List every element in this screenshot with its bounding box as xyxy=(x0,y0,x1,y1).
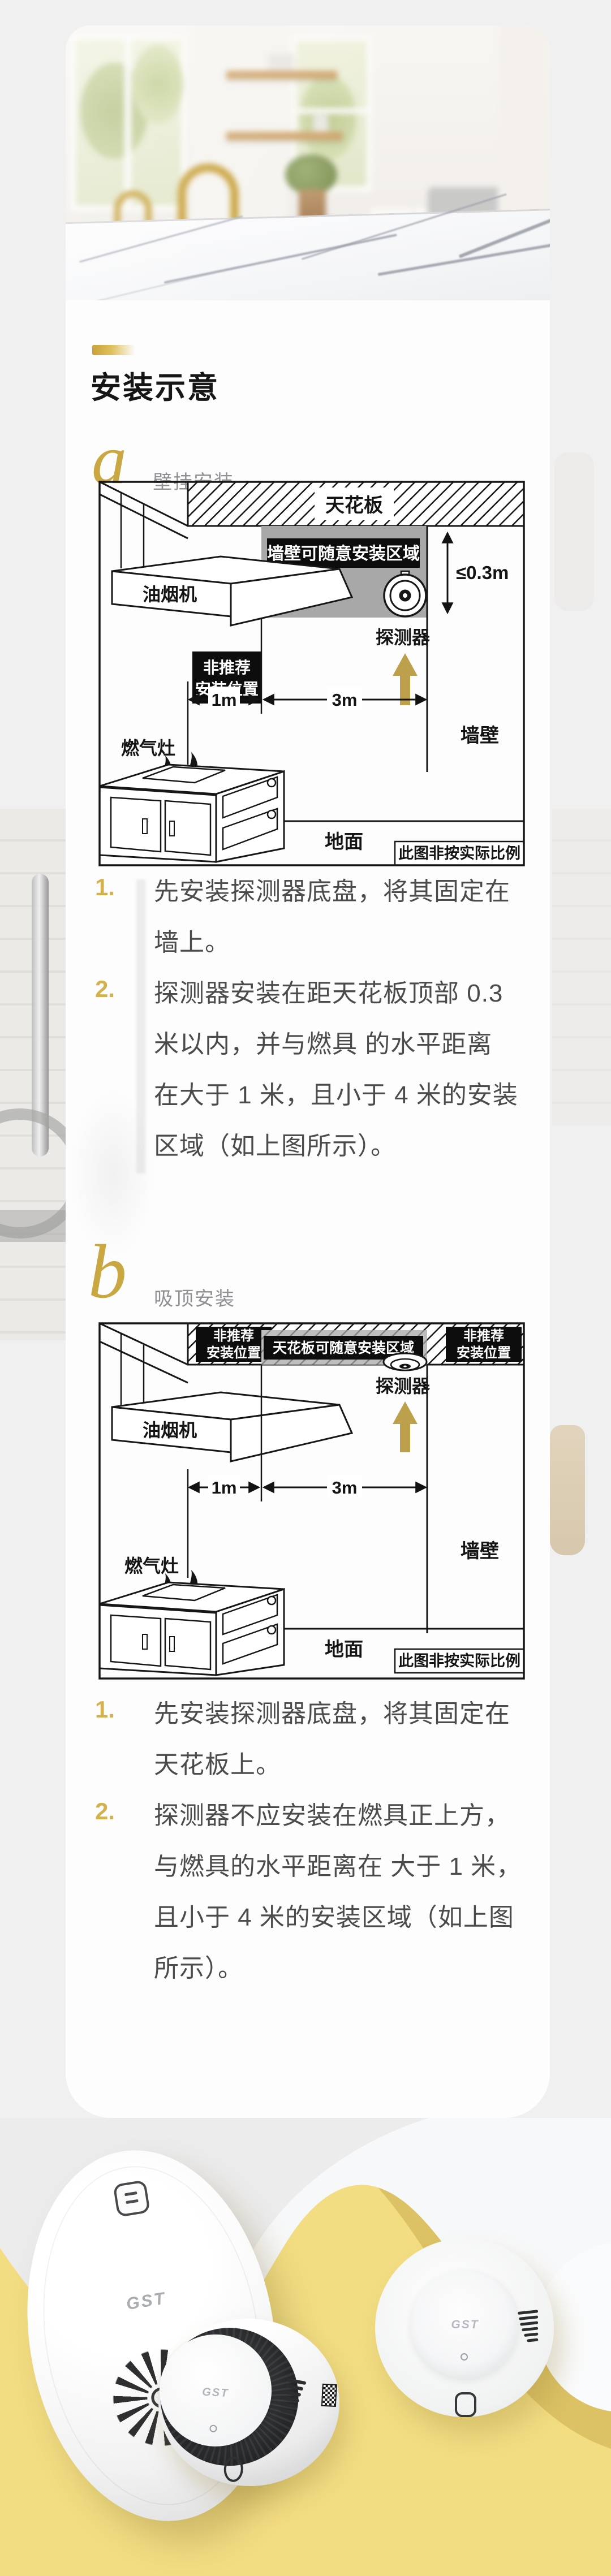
detector-icon xyxy=(384,1353,427,1370)
scale-note: 此图非按实际比例 xyxy=(398,844,520,862)
diagram-wall-mount: 天花板 墙壁可随意安装区域 ≤0.3m 探测器 油烟机 xyxy=(85,478,543,874)
gold-up-arrow xyxy=(393,1401,418,1452)
not-recommended-line2: 安装位置 xyxy=(206,1345,261,1361)
not-recommended-line1: 非推荐 xyxy=(213,1328,254,1344)
not-recommended-line1: 非推荐 xyxy=(203,659,251,676)
scale-note: 此图非按实际比例 xyxy=(398,1652,520,1669)
detector-dome: GST xyxy=(411,2269,519,2378)
grille-slot xyxy=(527,2338,538,2342)
step-text: 与燃具的水平距离在 大于 1 米， xyxy=(154,1849,550,1885)
photo-glare xyxy=(66,25,550,300)
section-b-label: 吸顶安装 xyxy=(154,1283,235,1311)
grille-slot xyxy=(280,2402,298,2409)
svg-text:1m: 1m xyxy=(212,1478,237,1498)
grille-slot xyxy=(522,2327,538,2331)
product-detail-page: 安装示意 a 壁挂安装 天花板 xyxy=(0,0,611,2576)
step-number: 1. xyxy=(95,1696,135,1723)
indicator-badge xyxy=(113,2180,150,2217)
zone-label: 天花板可随意安装区域 xyxy=(273,1340,414,1356)
step-text: 区域（如上图所示）。 xyxy=(154,1128,550,1164)
range-hood: 油烟机 xyxy=(112,1392,352,1461)
detector-label: 探测器 xyxy=(376,1376,431,1396)
bottle-decor xyxy=(550,1425,585,1555)
detector-label: 探测器 xyxy=(376,627,431,648)
product-showcase: GST GST xyxy=(0,2118,611,2576)
hood-label: 油烟机 xyxy=(143,1420,197,1440)
stove-cabinet xyxy=(100,1582,284,1675)
section-letter-b: b xyxy=(88,1233,127,1310)
badge-glyph xyxy=(126,2199,139,2204)
page-title: 安装示意 xyxy=(91,363,220,407)
svg-text:1m: 1m xyxy=(212,690,237,710)
step-number: 2. xyxy=(95,1798,135,1825)
step-text: 先安装探测器底盘，将其固定在 xyxy=(154,874,550,910)
brick-wall-texture-right xyxy=(552,809,611,1125)
not-recommended-line2: 安装位置 xyxy=(457,1345,511,1361)
grille-slot xyxy=(282,2390,302,2397)
detector-middle: GST xyxy=(154,2314,343,2491)
grille-slot xyxy=(280,2396,300,2402)
step-text: 先安装探测器底盘，将其固定在 xyxy=(154,1696,550,1732)
indicator-icon xyxy=(209,2424,217,2432)
grille-slot xyxy=(519,2315,538,2320)
floor-label: 地面 xyxy=(325,1639,363,1660)
badge-glyph xyxy=(124,2191,137,2196)
detector-right: GST xyxy=(375,2238,554,2417)
step-text: 在大于 1 米，且小于 4 米的安装 xyxy=(154,1077,550,1114)
measure-1m: 1m xyxy=(190,1474,258,1498)
step-text: 所示）。 xyxy=(154,1951,550,1987)
kitchen-photo xyxy=(66,25,550,300)
stove-label: 燃气灶 xyxy=(124,1556,179,1576)
stove-cabinet xyxy=(100,765,284,862)
gst-logo: GST xyxy=(411,2318,519,2332)
wall-label: 墙壁 xyxy=(461,1541,499,1562)
grille-slot xyxy=(520,2321,538,2325)
diagram-ceiling-mount: 非推荐 安装位置 天花板可随意安装区域 非推荐 安装位置 探测器 xyxy=(85,1318,543,1685)
step-text: 探测器不应安装在燃具正上方， xyxy=(154,1798,550,1834)
step-text: 且小于 4 米的安装区域（如上图 xyxy=(154,1900,550,1936)
step-number: 2. xyxy=(95,976,135,1003)
distance-03m-label: ≤0.3m xyxy=(456,562,509,583)
qr-code xyxy=(321,2384,337,2407)
step-text: 米以内，并与燃具 的水平距离 xyxy=(154,1026,550,1063)
content-card: 安装示意 a 壁挂安装 天花板 xyxy=(66,25,550,2118)
soft-shadow-decor xyxy=(554,452,594,611)
step-text: 墙上。 xyxy=(154,925,550,961)
gold-up-arrow xyxy=(393,653,418,705)
indicator-icon xyxy=(461,2353,468,2361)
svg-text:3m: 3m xyxy=(332,1478,358,1498)
grille-icon xyxy=(518,2310,541,2345)
test-button-icon xyxy=(455,2392,476,2417)
step-number: 1. xyxy=(95,874,135,901)
measure-3m: 3m xyxy=(265,1474,425,1498)
grille-slot xyxy=(524,2332,538,2337)
hood-label: 油烟机 xyxy=(143,584,197,605)
ceiling-label: 天花板 xyxy=(325,495,383,516)
zone-label: 墙壁可随意安装区域 xyxy=(267,544,420,563)
not-recommended-line1: 非推荐 xyxy=(463,1328,504,1344)
stove-label: 燃气灶 xyxy=(121,738,175,758)
floor-label: 地面 xyxy=(325,831,363,853)
step-text: 天花板上。 xyxy=(154,1747,550,1783)
grille-slot xyxy=(280,2409,294,2414)
title-accent-dash xyxy=(92,345,135,355)
step-text: 探测器安装在距天花板顶部 0.3 xyxy=(154,976,550,1012)
grille-slot xyxy=(284,2384,304,2391)
svg-text:3m: 3m xyxy=(332,690,358,710)
gst-logo: GST xyxy=(159,2384,272,2402)
wall-label: 墙壁 xyxy=(461,725,499,747)
